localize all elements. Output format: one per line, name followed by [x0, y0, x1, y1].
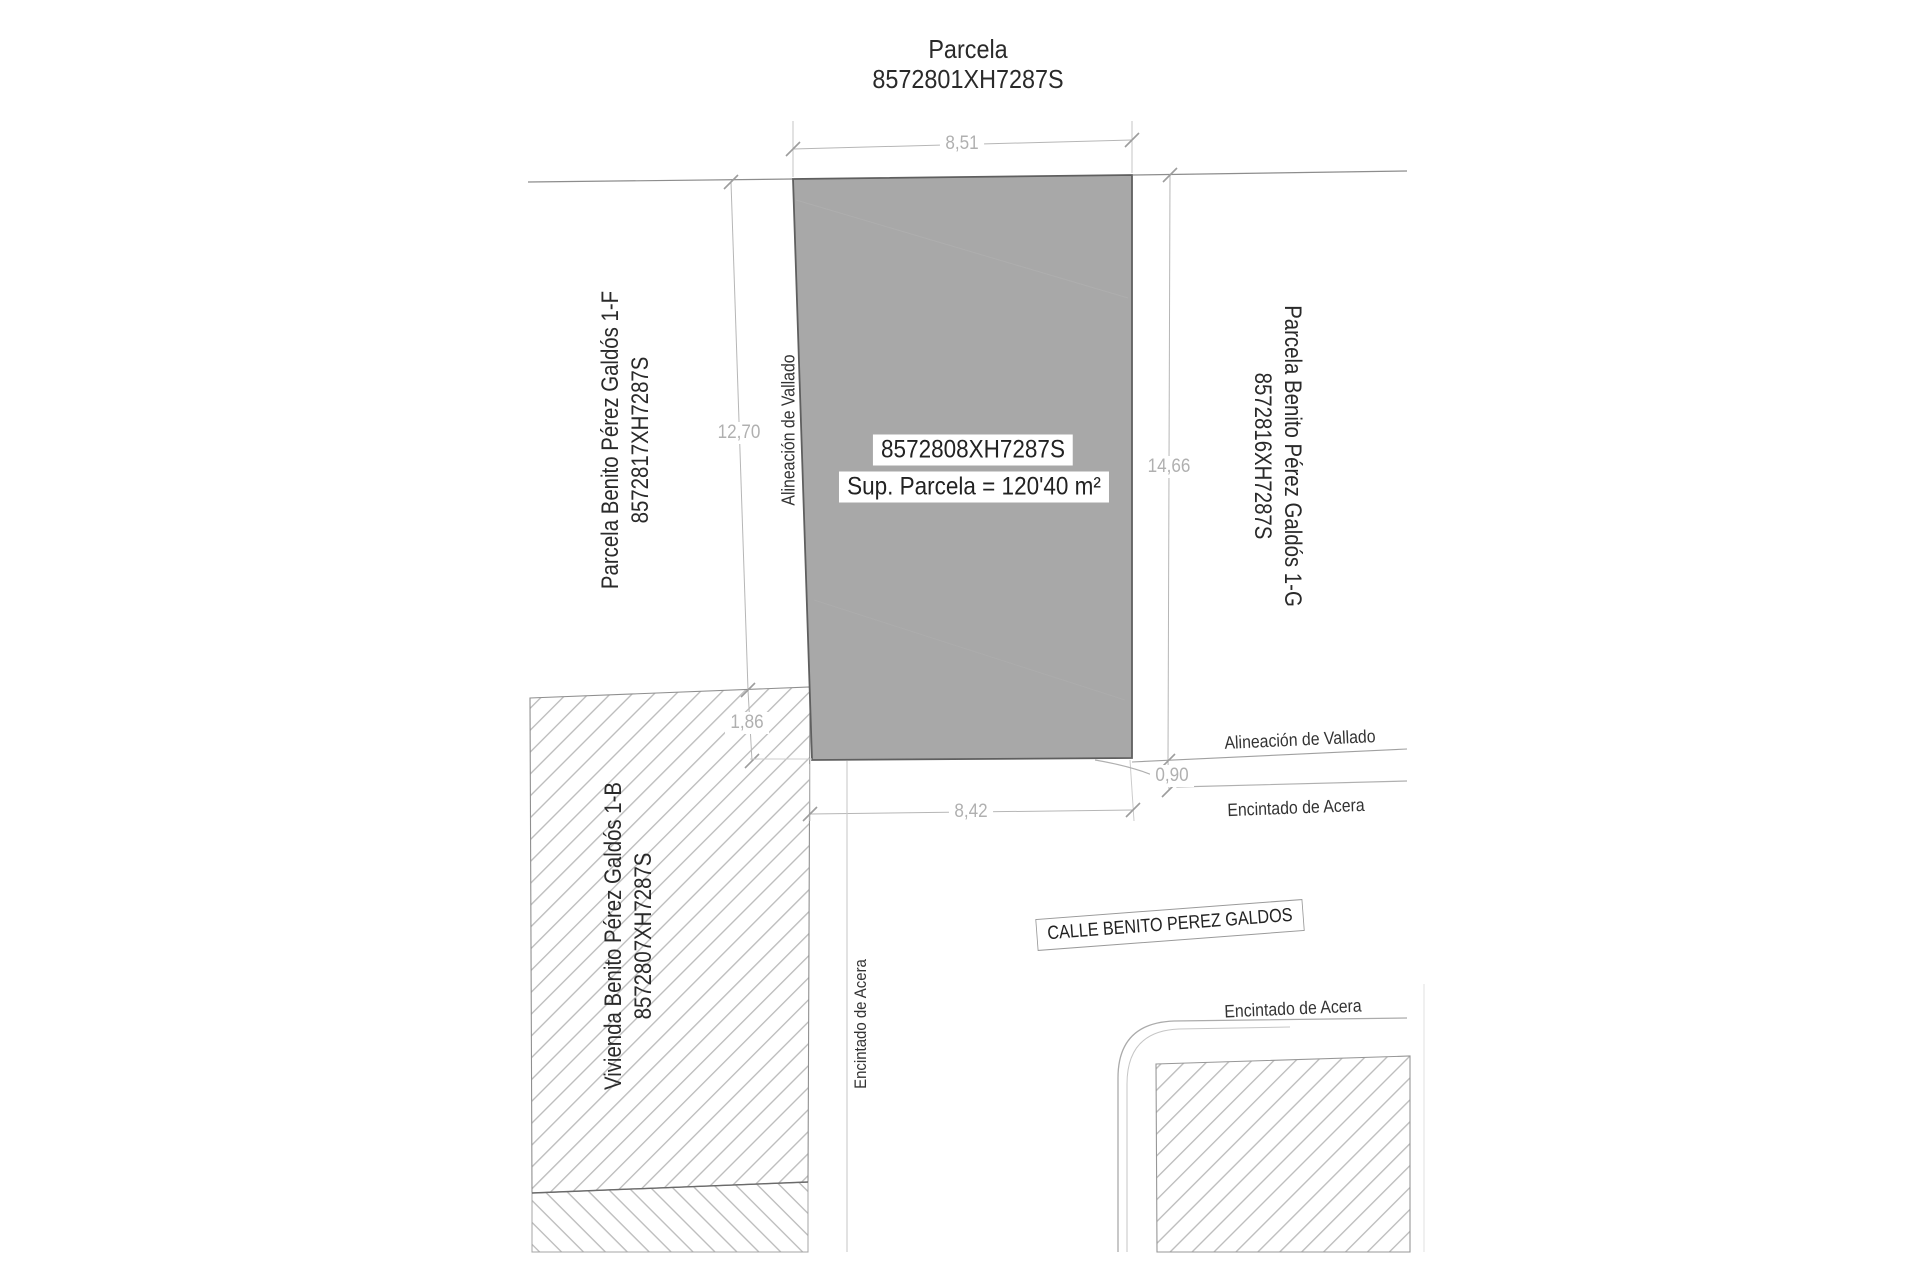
vallado-left-label: Alineación de Vallado: [779, 354, 800, 505]
hatch-area-street-corner: [1156, 1056, 1410, 1252]
dim-right-height: 14,66: [1142, 456, 1196, 478]
boundary-line-top-left: [528, 179, 793, 182]
plan-title-line1: Parcela: [872, 34, 1063, 64]
neighbor-right-name: Parcela Benito Pérez Galdós 1-G: [1277, 305, 1307, 607]
dim-bottom-width: 8,42: [949, 801, 993, 823]
parcel-polygon: [793, 175, 1132, 760]
plan-title-line2: 8572801XH7287S: [872, 64, 1063, 94]
dim-left-gap: 1,86: [725, 712, 769, 734]
neighbor-right-ref: 8572816XH7287S: [1247, 305, 1277, 607]
vivienda-name: Vivienda Benito Pérez Galdós 1-B: [599, 782, 629, 1090]
dim-top-width: 8,51: [940, 133, 984, 155]
curb-line-front: [1095, 760, 1407, 787]
neighbor-left-name: Parcela Benito Pérez Galdós 1-F: [596, 291, 626, 589]
dim-tick: [724, 175, 759, 768]
dim-line-right-height: [1168, 174, 1170, 790]
plan-linework: [0, 0, 1920, 1280]
parcel-area-label: Sup. Parcela = 120'40 m²: [839, 472, 1109, 503]
vivienda-ref: 8572807XH7287S: [629, 782, 659, 1090]
hatch-area-vivienda-lower-band: [532, 1182, 808, 1252]
cadastral-site-plan: Parcela 8572801XH7287S Parcela Benito Pé…: [0, 0, 1920, 1280]
hatch-area-vivienda: [530, 687, 810, 1193]
plan-title: Parcela 8572801XH7287S: [872, 34, 1063, 94]
neighbor-parcel-right-label: Parcela Benito Pérez Galdós 1-G 8572816X…: [1247, 305, 1307, 607]
dim-curb-offset: 0,90: [1150, 765, 1194, 787]
neighbor-parcel-left-label: Parcela Benito Pérez Galdós 1-F 8572817X…: [596, 291, 656, 589]
neighbor-left-ref: 8572817XH7287S: [626, 291, 656, 589]
parcel-ref-label: 8572808XH7287S: [873, 435, 1073, 466]
acera-left-vertical-label: Encintado de Acera: [851, 959, 871, 1089]
dim-left-height: 12,70: [712, 422, 766, 444]
neighbor-vivienda-label: Vivienda Benito Pérez Galdós 1-B 8572807…: [599, 782, 659, 1090]
dim-line-left-height: [731, 182, 752, 761]
